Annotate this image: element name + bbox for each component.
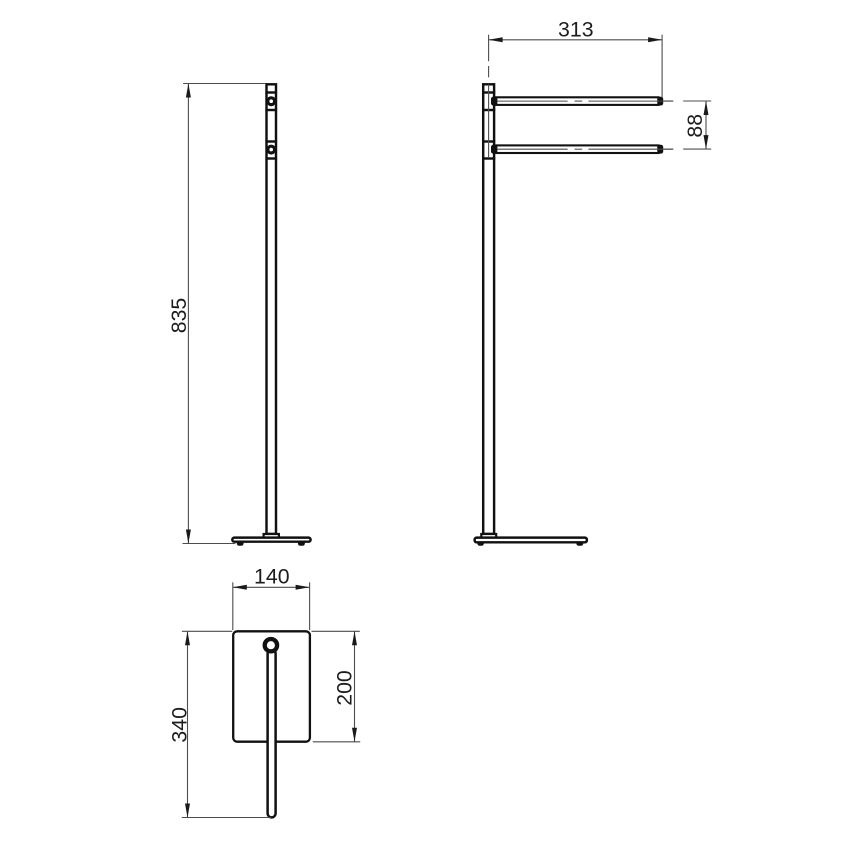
svg-text:835: 835 [167,298,191,334]
svg-text:200: 200 [333,670,357,706]
svg-text:88: 88 [683,114,707,138]
svg-text:313: 313 [558,18,594,42]
svg-text:140: 140 [254,564,290,588]
svg-text:340: 340 [167,707,191,743]
